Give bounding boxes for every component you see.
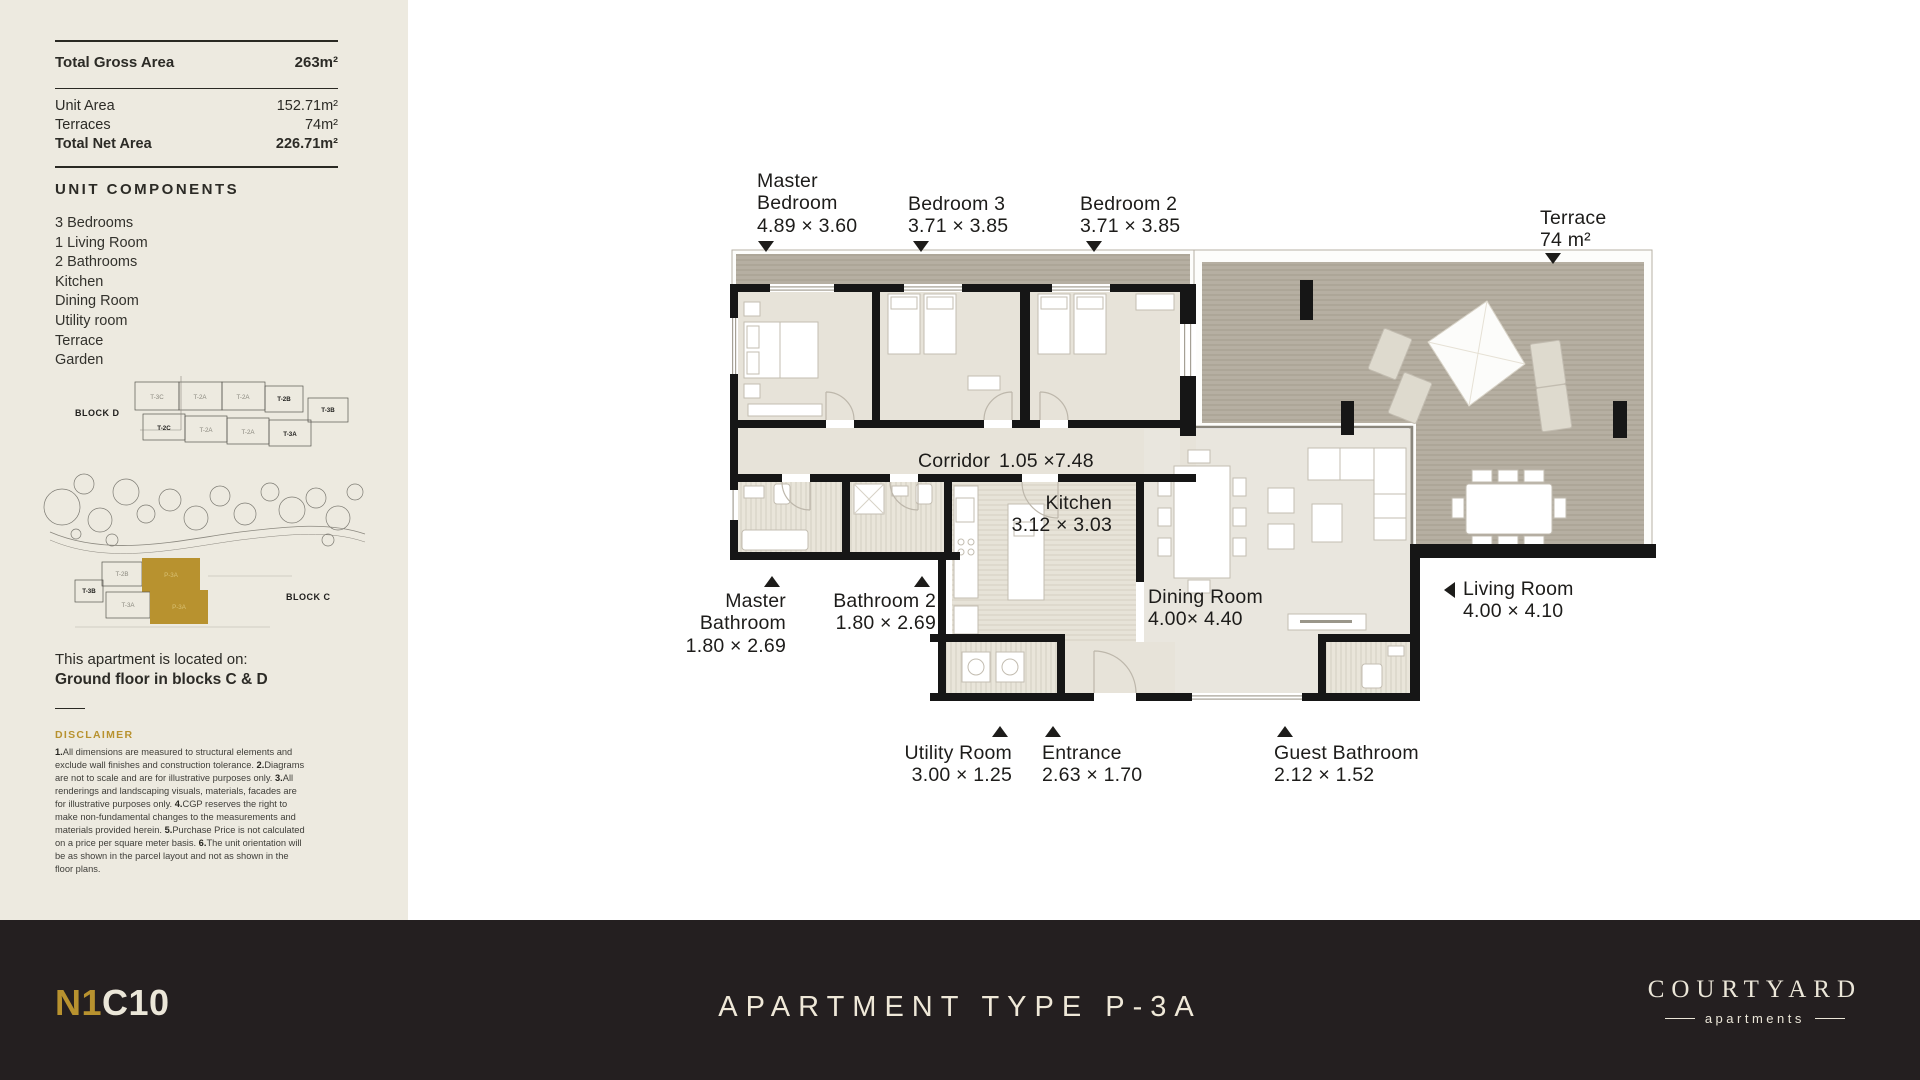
component-item: 1 Living Room: [55, 234, 338, 254]
unit-label: T-3B: [82, 588, 96, 595]
room-name: Bedroom 3: [908, 193, 1008, 215]
unit-label: T-2B: [277, 396, 291, 403]
stat-label: Unit Area: [55, 97, 115, 116]
apartment-type-title: APARTMENT TYPE P-3A: [718, 991, 1201, 1024]
sidebar: Total Gross Area 263m² Unit Area 152.71m…: [0, 0, 408, 920]
room-label-corridor: Corridor 1.05 ×7.48: [918, 450, 1094, 472]
component-item: 2 Bathrooms: [55, 253, 338, 273]
room-name: Entrance: [1042, 742, 1142, 764]
unit-label: T-2C: [157, 425, 171, 432]
component-item: Kitchen: [55, 273, 338, 293]
room-dims: 3.12 × 3.03: [990, 514, 1112, 536]
stat-label: Terraces: [55, 116, 111, 135]
room-name: Dining Room: [1148, 586, 1263, 608]
room-name: Master Bedroom: [757, 170, 875, 215]
unit-code: N1C10: [55, 982, 170, 1024]
room-name: Guest Bathroom: [1274, 742, 1419, 764]
room-label-guest-bathroom: Guest Bathroom 2.12 × 1.52: [1274, 742, 1419, 787]
unit-label: P-3A: [172, 604, 187, 611]
room-label-bathroom-2: Bathroom 2 1.80 × 2.69: [812, 590, 936, 635]
stat-row: Terraces 74m²: [55, 116, 338, 135]
gross-area-value: 263m²: [295, 54, 338, 71]
block-d-label: BLOCK D: [75, 408, 120, 418]
unit-components-title: UNIT COMPONENTS: [55, 168, 338, 198]
unit-label: T-2A: [193, 394, 207, 401]
room-dims: 4.00× 4.40: [1148, 608, 1263, 630]
room-dims: 3.00 × 1.25: [898, 764, 1012, 786]
location-line1: This apartment is located on:: [55, 650, 268, 670]
room-dims: 1.80 × 2.69: [664, 635, 786, 657]
landscape-trees: [44, 474, 365, 554]
disclaimer-text: 1.All dimensions are measured to structu…: [55, 746, 305, 876]
pointer-up-icon: [1277, 726, 1293, 737]
room-label-master-bathroom: Master Bathroom 1.80 × 2.69: [664, 590, 786, 657]
room-name: Terrace: [1540, 207, 1606, 229]
room-dims: 3.71 × 3.85: [1080, 215, 1180, 237]
block-c-buildings: [75, 558, 292, 627]
pointer-down-icon: [1086, 241, 1102, 252]
location-note: This apartment is located on: Ground flo…: [55, 650, 268, 690]
pointer-down-icon: [1545, 253, 1561, 264]
stat-value: 152.71m²: [277, 97, 338, 116]
gross-area-label: Total Gross Area: [55, 54, 174, 71]
area-stats: Total Gross Area 263m² Unit Area 152.71m…: [55, 40, 338, 371]
net-area-rows: Unit Area 152.71m² Terraces 74m² Total N…: [55, 89, 338, 166]
room-label-master-bedroom: Master Bedroom 4.89 × 3.60: [757, 170, 875, 237]
component-item: Garden: [55, 351, 338, 371]
divider: [1665, 1018, 1695, 1019]
pointer-up-icon: [914, 576, 930, 587]
unit-label: T-2B: [115, 571, 128, 578]
component-item: Utility room: [55, 312, 338, 332]
room-label-utility-room: Utility Room 3.00 × 1.25: [898, 742, 1012, 787]
stat-row: Total Net Area 226.71m²: [55, 135, 338, 154]
site-plan-map: BLOCK D T-3C T-2A T-2A T-2B T-3B T-2C T-…: [40, 372, 370, 642]
floor-plan-area: [722, 246, 1662, 746]
stat-value: 74m²: [305, 116, 338, 135]
stat-label: Total Net Area: [55, 135, 152, 154]
room-label-living-room: Living Room 4.00 × 4.10: [1444, 578, 1574, 623]
pointer-left-icon: [1444, 582, 1455, 598]
unit-label: T-2A: [236, 394, 250, 401]
divider: [1815, 1018, 1845, 1019]
room-dims: 1.05 ×7.48: [999, 450, 1094, 472]
room-label-bedroom-3: Bedroom 3 3.71 × 3.85: [908, 193, 1008, 238]
room-label-entrance: Entrance 2.63 × 1.70: [1042, 742, 1142, 787]
room-name: Utility Room: [898, 742, 1012, 764]
component-item: Dining Room: [55, 292, 338, 312]
divider: [55, 708, 85, 709]
room-dims: 4.89 × 3.60: [757, 215, 875, 237]
room-label-dining-room: Dining Room 4.00× 4.40: [1148, 586, 1263, 631]
unit-code-suffix: C10: [102, 982, 170, 1023]
unit-label: T-3C: [150, 394, 164, 401]
pointer-up-icon: [1045, 726, 1061, 737]
room-label-kitchen: Kitchen 3.12 × 3.03: [990, 492, 1112, 537]
room-name: Bathroom 2: [812, 590, 936, 612]
unit-code-prefix: N1: [55, 982, 102, 1023]
room-dims: 2.63 × 1.70: [1042, 764, 1142, 786]
pointer-up-icon: [992, 726, 1008, 737]
unit-label: T-2A: [199, 427, 213, 434]
room-dims: 2.12 × 1.52: [1274, 764, 1419, 786]
pointer-up-icon: [764, 576, 780, 587]
room-name: Master Bathroom: [664, 590, 786, 635]
footer-bar: N1C10 APARTMENT TYPE P-3A COURTYARD apar…: [0, 920, 1920, 1080]
component-item: 3 Bedrooms: [55, 214, 338, 234]
room-label-bedroom-2: Bedroom 2 3.71 × 3.85: [1080, 193, 1180, 238]
unit-label: T-2A: [241, 429, 255, 436]
room-name: Kitchen: [990, 492, 1112, 514]
pointer-down-icon: [913, 241, 929, 252]
block-c-label: BLOCK C: [286, 592, 331, 602]
stat-value: 226.71m²: [276, 135, 338, 154]
stat-row: Unit Area 152.71m²: [55, 97, 338, 116]
room-dims: 1.80 × 2.69: [812, 612, 936, 634]
room-dims: 3.71 × 3.85: [908, 215, 1008, 237]
unit-label: T-3A: [283, 431, 297, 438]
gross-area-row: Total Gross Area 263m²: [55, 42, 338, 88]
floor-plan-drawing: [722, 246, 1662, 746]
brand-logo: COURTYARD apartments: [1648, 976, 1862, 1026]
component-item: Terrace: [55, 332, 338, 352]
room-dims: 74 m²: [1540, 229, 1606, 251]
room-dims: 4.00 × 4.10: [1463, 600, 1574, 622]
brand-subtitle: apartments: [1648, 1011, 1862, 1026]
unit-label: T-3B: [321, 407, 335, 414]
disclaimer-title: DISCLAIMER: [55, 729, 133, 741]
unit-label: P-3A: [164, 572, 179, 579]
brochure-page: Total Gross Area 263m² Unit Area 152.71m…: [0, 0, 1920, 1080]
room-name: Corridor: [918, 450, 990, 472]
room-label-terrace: Terrace 74 m²: [1540, 207, 1606, 252]
room-name: Living Room: [1463, 578, 1574, 600]
pointer-down-icon: [758, 241, 774, 252]
unit-components-list: 3 Bedrooms1 Living Room2 BathroomsKitche…: [55, 214, 338, 371]
location-line2: Ground floor in blocks C & D: [55, 670, 268, 690]
room-name: Bedroom 2: [1080, 193, 1180, 215]
unit-label: T-3A: [121, 602, 135, 609]
brand-name: COURTYARD: [1648, 976, 1862, 1004]
brand-subtitle-text: apartments: [1705, 1011, 1805, 1026]
